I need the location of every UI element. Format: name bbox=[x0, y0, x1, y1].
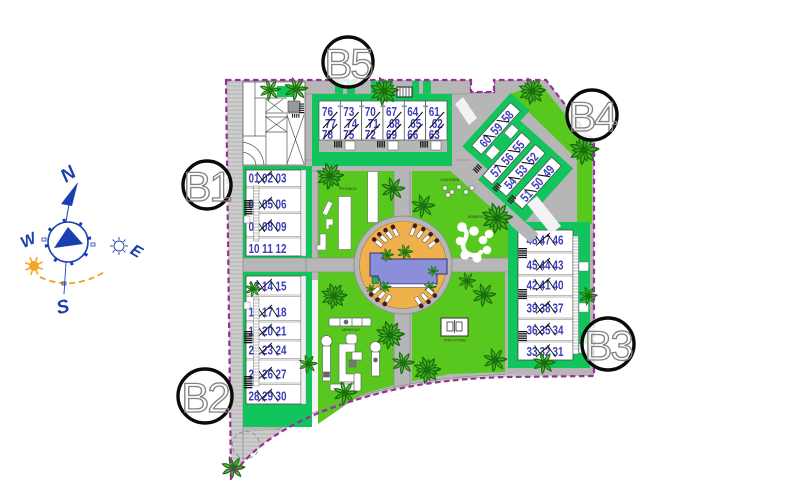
svg-text:27: 27 bbox=[276, 367, 287, 382]
svg-text:44: 44 bbox=[540, 258, 551, 273]
svg-text:37: 37 bbox=[553, 301, 564, 316]
svg-text:B4: B4 bbox=[568, 93, 617, 140]
svg-text:12: 12 bbox=[276, 241, 287, 256]
svg-text:40: 40 bbox=[553, 278, 564, 293]
svg-text:B2: B2 bbox=[181, 374, 229, 421]
svg-text:PING PONG: PING PONG bbox=[444, 339, 466, 343]
svg-text:47: 47 bbox=[540, 233, 551, 248]
svg-text:B5: B5 bbox=[324, 40, 372, 87]
svg-text:B1: B1 bbox=[183, 163, 231, 210]
svg-text:34: 34 bbox=[553, 323, 564, 338]
svg-text:46: 46 bbox=[553, 233, 564, 248]
svg-text:10: 10 bbox=[249, 241, 260, 256]
svg-text:43: 43 bbox=[553, 258, 564, 273]
svg-text:03: 03 bbox=[276, 171, 287, 186]
svg-text:24: 24 bbox=[276, 343, 287, 358]
svg-text:PETANCA: PETANCA bbox=[339, 187, 357, 191]
svg-text:CHILDREN: CHILDREN bbox=[440, 178, 460, 182]
svg-text:38: 38 bbox=[540, 301, 551, 316]
svg-text:MINIGOLF: MINIGOLF bbox=[342, 328, 361, 332]
svg-text:21: 21 bbox=[276, 324, 287, 339]
svg-text:35: 35 bbox=[540, 323, 551, 338]
svg-text:11: 11 bbox=[262, 241, 273, 256]
svg-text:06: 06 bbox=[276, 197, 287, 212]
svg-text:30: 30 bbox=[276, 389, 287, 404]
svg-text:15: 15 bbox=[276, 279, 287, 294]
svg-text:41: 41 bbox=[540, 278, 551, 293]
svg-text:18: 18 bbox=[276, 305, 287, 320]
svg-text:B3: B3 bbox=[584, 322, 632, 369]
svg-text:09: 09 bbox=[276, 219, 287, 234]
svg-text:31: 31 bbox=[553, 344, 564, 359]
